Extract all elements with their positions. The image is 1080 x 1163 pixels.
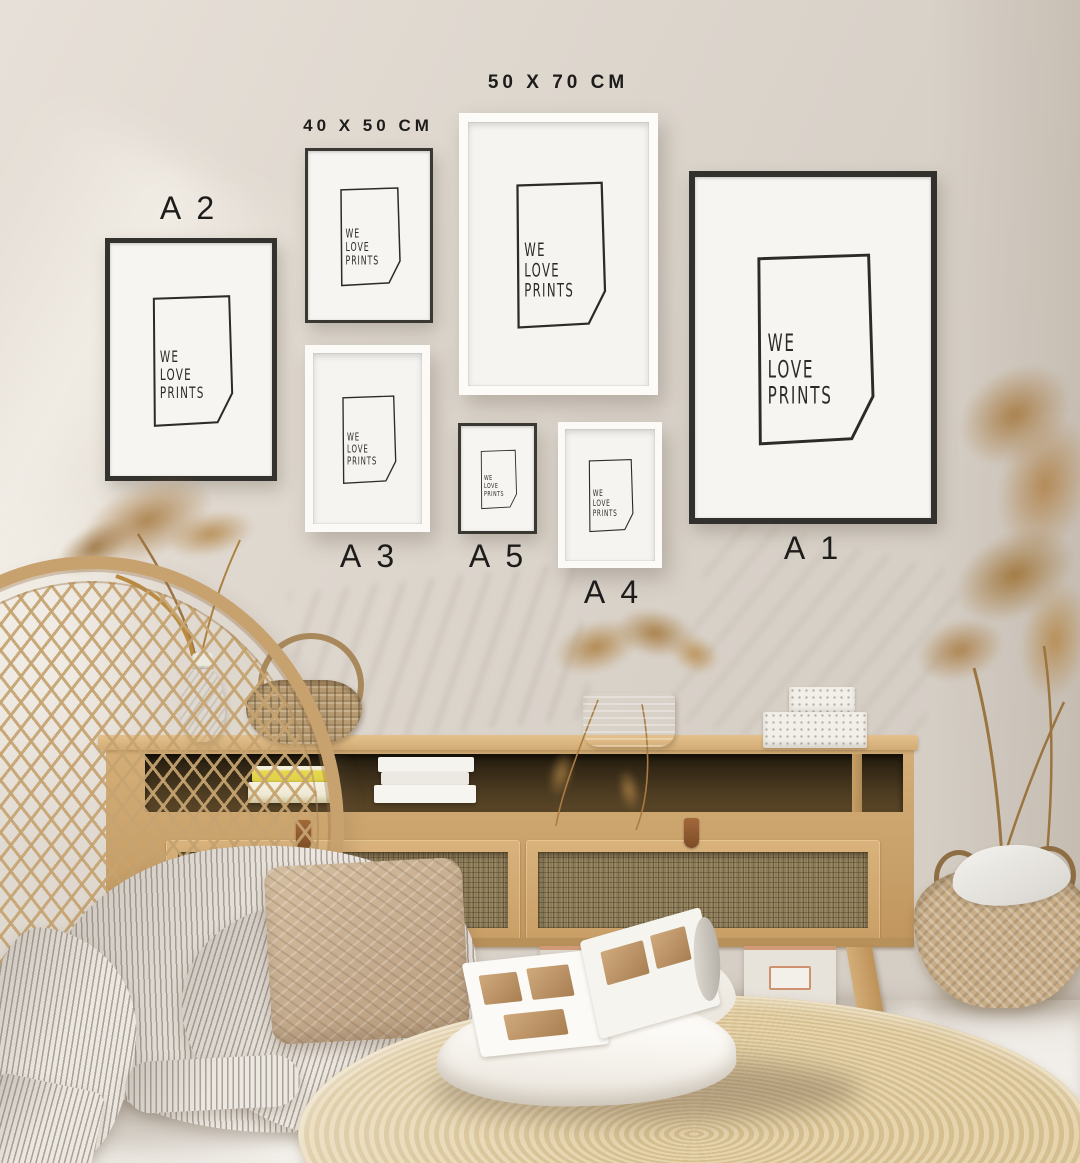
- label-50x70: 50 X 70 CM: [488, 72, 628, 94]
- svg-text:LOVE: LOVE: [483, 482, 497, 490]
- svg-text:LOVE: LOVE: [593, 498, 611, 509]
- we-love-prints-artwork: WE LOVE PRINTS: [582, 456, 638, 534]
- book-white: [381, 772, 469, 785]
- svg-text:PRINTS: PRINTS: [524, 280, 574, 301]
- svg-text:PRINTS: PRINTS: [347, 455, 377, 468]
- sideboard-shelf-divider: [852, 754, 862, 812]
- label-a3: A 3: [340, 538, 398, 575]
- we-love-prints-artwork: WE LOVE PRINTS: [740, 245, 886, 450]
- frame-50x70: WE LOVE PRINTS: [459, 113, 658, 395]
- svg-text:WE: WE: [160, 347, 179, 366]
- svg-text:PRINTS: PRINTS: [346, 254, 380, 268]
- magazine-photo: [478, 972, 522, 1005]
- we-love-prints-artwork: WE LOVE PRINTS: [331, 183, 407, 289]
- we-love-prints-artwork: WE LOVE PRINTS: [502, 175, 614, 332]
- svg-text:WE: WE: [483, 473, 492, 481]
- magazine-photo: [650, 926, 692, 969]
- svg-text:LOVE: LOVE: [346, 240, 370, 254]
- label-a1: A 1: [784, 530, 842, 567]
- label-a5: A 5: [469, 538, 527, 575]
- we-love-prints-artwork: WE LOVE PRINTS: [475, 447, 520, 510]
- magazine-photo: [503, 1009, 568, 1041]
- svg-text:LOVE: LOVE: [524, 260, 560, 281]
- book-white: [374, 785, 476, 803]
- frame-a4: WE LOVE PRINTS: [558, 422, 662, 568]
- room-scene: WE LOVE PRINTS WE LOVE PRINTS WE LOVE PR…: [0, 0, 1080, 1163]
- we-love-prints-artwork: WE LOVE PRINTS: [334, 391, 402, 486]
- svg-text:LOVE: LOVE: [347, 442, 369, 455]
- svg-text:LOVE: LOVE: [768, 354, 815, 383]
- pattern-box-large: [763, 712, 867, 748]
- frame-a1: WE LOVE PRINTS: [689, 171, 937, 524]
- svg-text:LOVE: LOVE: [160, 365, 192, 384]
- plant-pot: [583, 693, 675, 747]
- svg-text:PRINTS: PRINTS: [483, 490, 503, 498]
- svg-text:WE: WE: [346, 226, 361, 240]
- label-40x50: 40 X 50 CM: [303, 116, 433, 136]
- label-a2: A 2: [160, 190, 218, 227]
- magazine-photo: [600, 940, 649, 985]
- frame-a5: WE LOVE PRINTS: [458, 423, 537, 534]
- box-label-holder: [769, 966, 811, 990]
- svg-text:WE: WE: [347, 430, 360, 443]
- svg-text:WE: WE: [593, 488, 604, 499]
- we-love-prints-artwork: WE LOVE PRINTS: [141, 289, 241, 430]
- leather-pull: [684, 818, 699, 848]
- svg-text:PRINTS: PRINTS: [768, 380, 833, 409]
- svg-text:WE: WE: [524, 240, 546, 261]
- pattern-box-small: [789, 687, 855, 714]
- svg-text:PRINTS: PRINTS: [160, 383, 205, 402]
- blanket-roll: [124, 1053, 301, 1114]
- magazine-photo: [526, 964, 575, 1000]
- frame-a3: WE LOVE PRINTS: [305, 345, 430, 532]
- svg-text:PRINTS: PRINTS: [593, 508, 618, 519]
- frame-a2: WE LOVE PRINTS: [105, 238, 277, 481]
- frame-40x50: WE LOVE PRINTS: [305, 148, 433, 323]
- svg-text:WE: WE: [768, 328, 796, 357]
- leaf-pattern-pillow: [263, 857, 470, 1045]
- book-white: [378, 757, 474, 772]
